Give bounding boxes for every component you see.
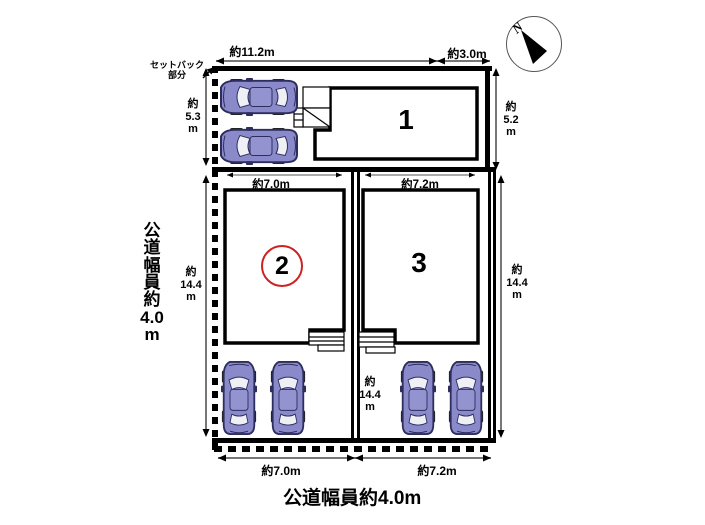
building-1-entrance-steps — [294, 87, 330, 127]
road-width-label-bottom: 公道幅員約4.0m — [283, 483, 421, 510]
east-boundary-line-inner — [488, 167, 491, 443]
dim-top-main: 約11.2m — [202, 43, 302, 60]
compass-icon: N — [506, 16, 562, 72]
lot1-east-boundary-line — [485, 66, 490, 172]
car-top-view-icon — [219, 78, 299, 121]
road-width-label-left: 公 道 幅 員 約 4.0 m — [134, 222, 170, 343]
lot2-number: 2 — [275, 252, 289, 281]
dim-left-lower: 約 14.4 m — [177, 266, 205, 304]
east-boundary-line-outer — [493, 167, 496, 443]
lot1-number: 1 — [390, 102, 422, 138]
south-road-dashed-line — [214, 446, 494, 452]
lot3-number: 3 — [402, 244, 436, 282]
dim-lot2-width: 約7.0m — [241, 176, 301, 192]
dim-bottom-right: 約7.2m — [397, 462, 477, 479]
lot2-number-circled: 2 — [261, 245, 303, 287]
dim-mid-lower: 約 14.4 m — [355, 376, 385, 414]
lot2-lot3-divider-west — [351, 172, 354, 438]
car-top-view-icon — [270, 360, 306, 441]
car-top-view-icon — [400, 360, 436, 441]
building-3-entrance-steps — [359, 332, 395, 353]
car-top-view-icon — [219, 127, 299, 170]
dim-lot3-width: 約7.2m — [390, 176, 450, 192]
dim-left-upper: 約 5.3 m — [181, 98, 205, 136]
car-top-view-icon — [221, 360, 257, 441]
dim-top-right: 約3.0m — [427, 45, 507, 62]
setback-label: セットバック 部分 — [144, 60, 210, 81]
car-top-view-icon — [448, 360, 484, 441]
dim-right-lower: 約 14.4 m — [502, 264, 532, 302]
compass-north-label: N — [509, 19, 527, 37]
dim-right-upper: 約 5.2 m — [498, 101, 524, 139]
setback-boundary-dashed-line — [212, 66, 218, 452]
north-boundary-line — [212, 66, 492, 71]
building-2-entrance-steps — [309, 332, 344, 351]
site-plan: 1 2 3 約11.2m 約3.0m 約 5.3 m 約 5.2 m 約 14.… — [0, 0, 705, 525]
dim-bottom-left: 約7.0m — [241, 462, 321, 479]
